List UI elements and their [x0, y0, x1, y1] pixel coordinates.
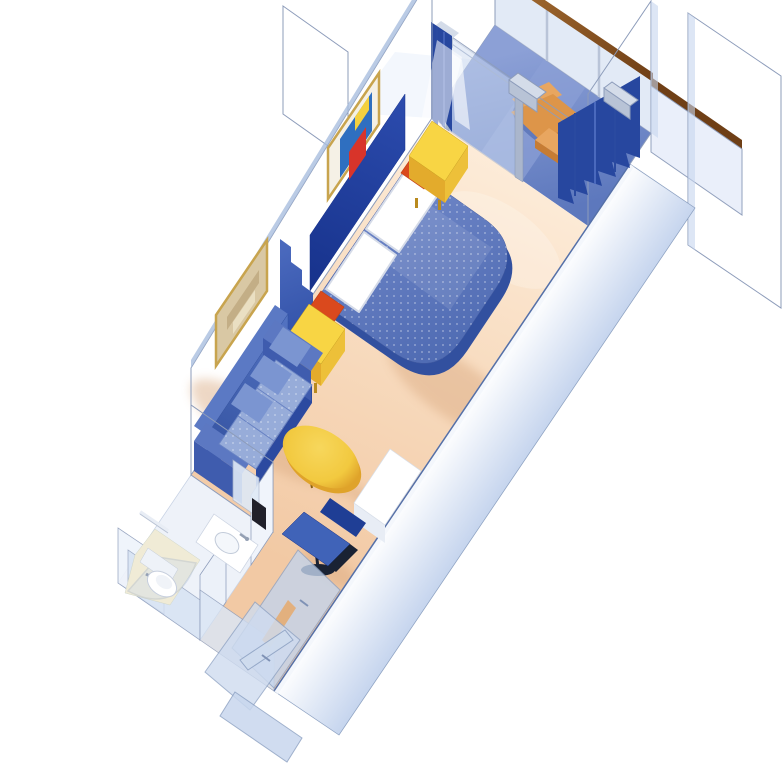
faucet-base: [245, 537, 249, 541]
floor-plan-canvas: [0, 0, 783, 768]
stateroom-floor-plan: [0, 0, 783, 768]
wall-edge: [651, 1, 658, 138]
